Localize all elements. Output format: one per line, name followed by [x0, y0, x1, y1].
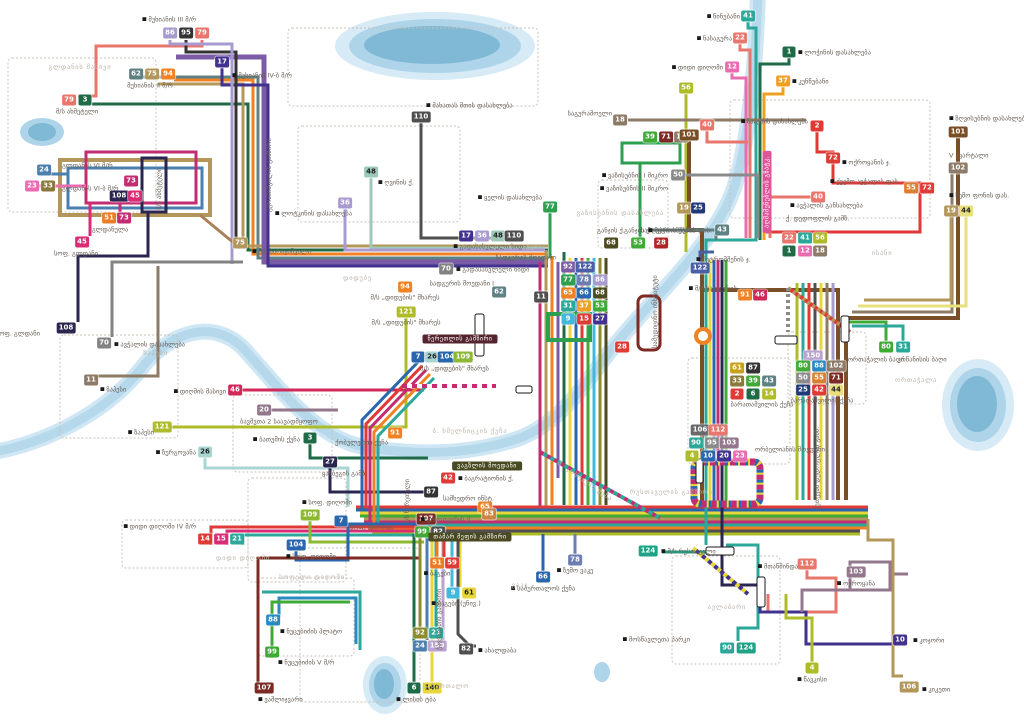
stop-label: ბავშვთა 2 საავადმყოფო — [240, 419, 318, 426]
route-badge-88: 88 — [812, 361, 826, 372]
stop-label: ■ ბაგრატიონის ქ. — [458, 476, 514, 483]
route-badge-3: 3 — [79, 95, 92, 106]
stop-label: ■ მ/ს რუსთაველი — [661, 549, 716, 556]
stop-label: ■ ნუცუბიძის V მ/რ — [278, 660, 334, 667]
route-badge-66: 66 — [536, 572, 550, 583]
terminal-square-icon: ■ — [830, 179, 836, 185]
route-badge-25: 25 — [796, 385, 810, 396]
stop-label: ■ მ/ს სარაჯიშვილი — [252, 249, 311, 256]
terminal-square-icon: ■ — [453, 244, 459, 250]
terminal-square-icon: ■ — [278, 660, 284, 666]
route-badge-62: 62 — [492, 287, 506, 298]
route-badge-102: 102 — [827, 361, 846, 372]
route-badge-80: 80 — [796, 361, 810, 372]
route-badge-17: 17 — [215, 57, 229, 68]
stop-label: ■ ლოჭინის დასახლება — [798, 50, 871, 57]
route-badge-40: 40 — [700, 120, 714, 131]
stop-label: მ/ს „დიდუბის" მხარეს — [371, 295, 440, 302]
route-badge-77: 77 — [561, 275, 575, 286]
route-badge-53: 53 — [593, 301, 607, 312]
terminal-square-icon: ■ — [842, 160, 848, 166]
stop-label: ■ ნასაგურა — [697, 36, 732, 43]
terminal-square-icon: ■ — [602, 173, 608, 179]
district-label: ზაჰესი — [143, 349, 168, 357]
stop-label: ■ მუხიანის IV-ბ მ/რ — [232, 73, 292, 80]
route-badge-14: 14 — [198, 534, 212, 545]
terminal-square-icon: ■ — [623, 637, 629, 643]
route-badge-112: 112 — [798, 559, 817, 570]
route-badge-71: 71 — [659, 132, 673, 143]
district-label: კუკია — [522, 243, 543, 251]
route-badge-108: 108 — [57, 323, 76, 334]
stop-label: მ/ს წერეთელი — [404, 479, 411, 524]
route-badge-9: 9 — [562, 314, 575, 325]
route-badge-50: 50 — [796, 373, 810, 384]
stop-label: ■ მუხიანის III მ/რ — [142, 17, 196, 24]
route-badge-22: 22 — [782, 233, 796, 244]
district-label: გლდანის მასივი — [49, 63, 112, 71]
route-badge-70: 70 — [97, 338, 111, 349]
route-badge-28: 28 — [615, 342, 629, 353]
terminal-square-icon: ■ — [302, 500, 308, 506]
route-badge-4: 4 — [686, 451, 699, 462]
stop-label: სამედიცინო ინსტიტუტი — [652, 275, 659, 348]
terminal-square-icon: ■ — [142, 17, 148, 23]
district-label: დიდი დიღომი — [216, 554, 270, 562]
route-badge-1: 1 — [783, 246, 796, 257]
route-badge-21: 21 — [230, 534, 244, 545]
terminal-square-icon: ■ — [696, 257, 702, 263]
stop-label: ■ ყელის დასახლება — [478, 195, 542, 202]
route-badge-15: 15 — [577, 314, 591, 325]
route-badge-91: 91 — [738, 290, 752, 301]
route-badge-91: 91 — [388, 428, 402, 439]
map-annotations: 8695791762759479324233373108455173457510… — [0, 0, 1024, 724]
route-badge-61: 61 — [462, 588, 476, 599]
terminal-square-icon: ■ — [100, 387, 106, 393]
stop-label: ■ ზღვისუბნის დასახლება — [949, 116, 1024, 123]
route-badge-15: 15 — [214, 534, 228, 545]
route-badge-87: 87 — [746, 363, 760, 374]
district-label: მ. კოსტავას ქუჩა — [556, 459, 614, 503]
stop-label: ■ ბათუმის ქუჩა — [253, 437, 300, 444]
route-badge-110: 110 — [412, 112, 431, 123]
stop-label: სოფ. გლდანი — [54, 251, 98, 258]
route-badge-68: 68 — [604, 238, 618, 249]
stop-label: ყაზბეგის გამზ. — [322, 471, 367, 478]
route-badge-95: 95 — [179, 28, 193, 39]
route-badge-7: 7 — [335, 516, 348, 527]
route-badge-110: 110 — [505, 231, 524, 242]
stop-label: ქობულეთის ქუჩა — [335, 440, 388, 447]
route-badge-121: 121 — [397, 307, 416, 318]
stop-label: ■ მოსწავლეთა პარკი — [623, 637, 690, 644]
route-badge-77: 77 — [543, 202, 557, 213]
route-badge-51: 51 — [430, 558, 444, 569]
route-badge-72: 72 — [920, 183, 934, 194]
stop-label: გლდანულა — [92, 227, 128, 234]
route-badge-19: 19 — [677, 203, 691, 214]
route-badge-124: 124 — [639, 546, 658, 557]
stop-label: ■ ლოტკინის დასახლება — [275, 211, 352, 218]
stop-label: ბარათაშვილის ქუჩა — [731, 402, 794, 409]
terminal-square-icon: ■ — [707, 14, 713, 20]
stop-label: ■ ვაზისუბნის II მიკრო — [600, 186, 668, 193]
terminal-square-icon: ■ — [949, 193, 955, 199]
terminal-square-icon: ■ — [697, 36, 703, 42]
route-badge-104: 104 — [287, 540, 306, 551]
route-badge-103: 103 — [720, 438, 739, 449]
terminal-square-icon: ■ — [922, 687, 928, 693]
terminal-square-icon: ■ — [252, 249, 258, 255]
route-badge-44: 44 — [959, 206, 973, 217]
route-badge-4: 4 — [806, 663, 819, 674]
terminal-square-icon: ■ — [913, 638, 919, 644]
transit-map: 8695791762759479324233373108455173457510… — [0, 0, 1024, 724]
route-badge-46: 46 — [228, 385, 242, 396]
route-badge-95: 95 — [705, 438, 719, 449]
stop-label: ■ კოჯორი — [913, 638, 944, 645]
terminal-square-icon: ■ — [426, 103, 432, 109]
terminal-square-icon: ■ — [232, 73, 238, 79]
terminal-square-icon: ■ — [420, 517, 426, 523]
route-badge-44: 44 — [829, 385, 843, 396]
route-badge-107: 107 — [255, 683, 274, 694]
district-label: დიდუბე — [343, 274, 372, 282]
route-badge-122: 122 — [576, 262, 595, 273]
route-badge-101: 101 — [949, 127, 968, 138]
stop-label: ■ გადასასვლელი ხიდი — [453, 244, 526, 251]
stop-label: სადგურის მოედანი I — [430, 281, 494, 288]
terminal-square-icon: ■ — [424, 571, 430, 577]
route-badge-37: 37 — [776, 76, 790, 87]
district-label: სოფელი დიღომი — [279, 573, 345, 581]
route-badge-20: 20 — [257, 405, 271, 416]
stop-label: ■ გადასასვლელი ხიდი — [456, 267, 529, 274]
stop-label: ■ დიდი დიღომი — [672, 65, 723, 72]
terminal-square-icon: ■ — [478, 648, 484, 654]
route-badge-19: 19 — [944, 206, 958, 217]
route-badge-43: 43 — [715, 225, 729, 236]
route-badge-109: 109 — [301, 510, 320, 521]
route-badge-2: 2 — [811, 121, 824, 132]
street-ribbon-label: თამარ მეფის გამზირი — [428, 533, 511, 542]
route-badge-12: 12 — [798, 246, 812, 257]
route-badge-79: 79 — [195, 28, 209, 39]
route-badge-59: 59 — [445, 558, 459, 569]
stop-label: ■ მახათას მთის დასახლება — [426, 103, 513, 110]
route-badge-80: 80 — [879, 342, 893, 353]
route-badge-10: 10 — [893, 635, 907, 646]
stop-label: ■ ნუცუბიძის პლატო — [280, 629, 342, 636]
stop-label: ■ ახალდაბა — [478, 648, 517, 655]
terminal-square-icon: ■ — [458, 476, 464, 482]
terminal-square-icon: ■ — [689, 286, 695, 292]
terminal-square-icon: ■ — [478, 195, 484, 201]
route-badge-1: 1 — [783, 47, 796, 58]
route-badge-72: 72 — [826, 153, 840, 164]
route-badge-3: 3 — [304, 433, 317, 444]
route-badge-94: 94 — [161, 69, 175, 80]
stop-label: V კვარტალი — [949, 153, 988, 160]
stop-label: გლდანის VI მ/რ — [62, 163, 113, 170]
route-badge-70: 70 — [439, 264, 453, 275]
route-badge-73: 73 — [124, 176, 138, 187]
route-badge-94: 94 — [398, 282, 412, 293]
terminal-square-icon: ■ — [286, 554, 292, 560]
terminal-square-icon: ■ — [557, 568, 563, 574]
stop-label: მ/ს „დიდუბის" მხარეს — [372, 320, 441, 327]
terminal-square-icon: ■ — [280, 629, 286, 635]
route-badge-42: 42 — [812, 385, 826, 396]
route-badge-88: 88 — [266, 615, 280, 626]
stop-label: ■ ზაჰესი — [128, 430, 154, 437]
stop-label: ■ სოფ. დიღომი — [302, 500, 352, 507]
route-badge-87: 87 — [424, 487, 438, 498]
route-badge-36: 36 — [338, 198, 352, 209]
district-label: საბურთალო — [423, 682, 469, 690]
route-badge-109: 109 — [454, 352, 473, 363]
route-badge-62: 62 — [129, 69, 143, 80]
route-badge-22: 22 — [733, 33, 747, 44]
route-badge-6: 6 — [408, 683, 421, 694]
route-badge-26: 26 — [198, 447, 212, 458]
route-badge-31: 31 — [896, 342, 910, 353]
route-badge-90: 90 — [720, 643, 734, 654]
route-badge-10: 10 — [701, 451, 715, 462]
terminal-square-icon: ■ — [672, 65, 678, 71]
terminal-square-icon: ■ — [600, 186, 606, 192]
terminal-square-icon: ■ — [792, 79, 798, 85]
terminal-square-icon: ■ — [758, 564, 764, 570]
route-badge-37: 37 — [577, 301, 591, 312]
route-badge-6: 6 — [747, 389, 760, 400]
route-badge-90: 90 — [689, 438, 703, 449]
stop-label: ■ ზურგოვანა — [156, 450, 196, 457]
street-ribbon-label: ვაგზლის მოედანი — [452, 462, 522, 471]
route-badge-48: 48 — [364, 167, 378, 178]
route-badge-75: 75 — [145, 69, 159, 80]
route-badge-102: 102 — [949, 163, 968, 174]
district-label: ორთაჭალა — [895, 376, 937, 384]
stop-label: ■ მთაწმინდა — [758, 564, 798, 571]
stop-label: ■ გოლოვინის ქ. — [420, 517, 472, 524]
route-badge-82: 82 — [459, 644, 473, 655]
route-badge-121: 121 — [153, 422, 172, 433]
terminal-square-icon: ■ — [837, 581, 843, 587]
route-badge-106: 106 — [900, 682, 919, 693]
stop-label: ■ წავკისი — [797, 677, 827, 684]
stop-label: სამხედრო ინსტ. — [443, 496, 494, 503]
route-badge-36: 36 — [475, 231, 489, 242]
stop-label: ■ ზემო ვაკე — [557, 568, 594, 575]
route-badge-31: 31 — [561, 301, 575, 312]
route-badge-75: 75 — [233, 238, 247, 249]
route-badge-45: 45 — [75, 237, 89, 248]
district-label: ვაზისუბნის დასახლება — [577, 209, 664, 217]
terminal-square-icon: ■ — [790, 203, 796, 209]
route-badge-86: 86 — [593, 275, 607, 286]
route-badge-79: 79 — [62, 95, 76, 106]
route-badge-14: 14 — [762, 389, 776, 400]
stop-label: ორთაჭალის ბაღი — [848, 357, 904, 364]
stop-label: ■ ღვინის ქ. — [378, 180, 414, 187]
terminal-square-icon: ■ — [949, 116, 955, 122]
stop-label: კრწანისის ბაღი — [897, 357, 946, 364]
street-ribbon-label: წერეთლის გამზირი — [423, 335, 498, 344]
route-badge-42: 42 — [441, 473, 455, 484]
route-badge-33: 33 — [730, 376, 744, 387]
stop-label: მუხიანის II მ/რ — [127, 83, 173, 90]
terminal-square-icon: ■ — [253, 437, 259, 443]
route-badge-55: 55 — [812, 373, 826, 384]
route-badge-7: 7 — [412, 352, 425, 363]
route-badge-50: 50 — [671, 170, 685, 181]
stop-label: ■ ოქროყანა — [837, 581, 875, 588]
route-badge-46: 46 — [753, 290, 767, 301]
stop-label: ■ ავჭალის განსახლება — [790, 203, 863, 210]
stop-label: ქ. დედოფლის გამზ. — [786, 216, 849, 223]
route-badge-103: 103 — [847, 567, 866, 578]
route-badge-27: 27 — [323, 457, 337, 468]
route-badge-24: 24 — [37, 165, 51, 176]
route-badge-106: 106 — [691, 425, 710, 436]
route-badge-18: 18 — [613, 115, 627, 126]
route-badge-86: 86 — [163, 28, 177, 39]
stop-label: ■ დიდი დიღომი IV მ/რ — [123, 524, 196, 531]
route-badge-65: 65 — [561, 288, 575, 299]
route-badge-78: 78 — [577, 275, 591, 286]
route-badge-20: 20 — [717, 451, 731, 462]
route-badge-66: 66 — [577, 288, 591, 299]
stop-label: ჭავჭავაძის გამზირი — [436, 589, 443, 650]
stop-label: ბარათაშვილის ქუჩა — [791, 398, 854, 405]
stop-label: ■ სოფ. დიღომი — [286, 554, 336, 561]
stop-label: ■ მეტრომშენის დას. — [648, 228, 712, 235]
terminal-square-icon: ■ — [798, 50, 804, 56]
route-badge-78: 78 — [568, 555, 582, 566]
stop-label: სადგურის მოედანი — [496, 255, 556, 262]
route-badge-71: 71 — [829, 373, 843, 384]
route-badge-124: 124 — [737, 643, 756, 654]
terminal-square-icon: ■ — [128, 430, 134, 436]
route-badge-23: 23 — [733, 451, 747, 462]
route-badge-56: 56 — [813, 233, 827, 244]
terminal-square-icon: ■ — [456, 267, 462, 273]
stop-label: ■ ქვემო ავჭალის დას. — [830, 179, 900, 186]
route-badge-33: 33 — [41, 181, 55, 192]
route-badge-12: 12 — [725, 62, 739, 73]
terminal-square-icon: ■ — [741, 119, 747, 125]
route-badge-41: 41 — [741, 11, 755, 22]
street-ribbon-label: აღმაშენებლის გზატკ. — [763, 151, 772, 233]
route-badge-99: 99 — [265, 647, 279, 658]
stop-label: ■ კუნწუბანი — [792, 79, 829, 86]
district-label: ვაკე — [512, 581, 528, 589]
district-label: რუსთაველის გამზირი — [630, 488, 713, 496]
stop-label: ■ დიღმის მასივი — [174, 389, 227, 396]
route-badge-23: 23 — [25, 181, 39, 192]
route-badge-101: 101 — [680, 130, 699, 141]
stop-label: გურამიშვილის გამზირი — [266, 138, 273, 212]
stop-label: მ/ს „დიდუბის" მხარეს — [420, 366, 489, 373]
stop-label: ■ წინუბანი — [707, 14, 740, 21]
route-badge-55: 55 — [904, 183, 918, 194]
district-label: ბ. ხმელნიცკის ქუჩა — [433, 427, 508, 435]
route-badge-18: 18 — [813, 246, 827, 257]
route-badge-17: 17 — [459, 231, 473, 242]
route-badge-73: 73 — [117, 213, 131, 224]
route-badge-45: 45 — [128, 191, 142, 202]
stop-label: გლდანის VI-ბ მ/რ — [62, 186, 118, 193]
terminal-square-icon: ■ — [661, 549, 667, 555]
route-badge-48: 48 — [491, 231, 505, 242]
terminal-square-icon: ■ — [378, 180, 384, 186]
stop-label: სოფ. დიღომი — [350, 525, 394, 532]
route-badge-92: 92 — [561, 262, 575, 273]
route-badge-9: 9 — [447, 588, 460, 599]
route-badge-2: 2 — [731, 389, 744, 400]
stop-label: ■ ლისის ტბა — [396, 697, 436, 704]
route-badge-43: 43 — [762, 376, 776, 387]
stop-label: ■ ავჭალის დასახლება — [114, 342, 185, 349]
terminal-square-icon: ■ — [797, 677, 803, 683]
route-badge-27: 27 — [593, 314, 607, 325]
route-badge-112: 112 — [709, 425, 728, 436]
stop-label: სოფ. გლდანი — [0, 331, 40, 338]
terminal-square-icon: ■ — [156, 450, 162, 456]
route-badge-83: 83 — [482, 509, 496, 520]
stop-label: საგურამოელი — [568, 111, 612, 118]
terminal-square-icon: ■ — [396, 697, 402, 703]
stop-label: მ/ს ახმეტელი — [156, 168, 163, 210]
route-badge-56: 56 — [679, 83, 693, 94]
route-badge-122: 122 — [691, 263, 710, 274]
terminal-square-icon: ■ — [275, 211, 281, 217]
terminal-square-icon: ■ — [114, 342, 120, 348]
terminal-square-icon: ■ — [174, 389, 180, 395]
stop-label: ■ ზაჰესი — [100, 387, 126, 394]
route-badge-39: 39 — [746, 376, 760, 387]
stop-label: ■ მეტრომშენის ჯ. — [696, 257, 751, 264]
terminal-square-icon: ■ — [648, 228, 654, 234]
stop-label: ქეთევან დედოფლის გამზ. — [814, 427, 821, 510]
route-badge-53: 53 — [631, 238, 645, 249]
route-badge-61: 61 — [730, 363, 744, 374]
route-badge-24: 24 — [413, 641, 427, 652]
route-badge-28: 28 — [654, 238, 668, 249]
route-badge-41: 41 — [798, 233, 812, 244]
route-badge-99: 99 — [415, 527, 429, 538]
route-badge-39: 39 — [643, 132, 657, 143]
stop-label: ■ მ/ს სადგურის — [689, 286, 738, 293]
district-label: ისანი — [872, 249, 893, 257]
route-badge-25: 25 — [691, 203, 705, 214]
stop-label: ■ ზაჰესის დასახლება — [741, 119, 808, 126]
route-badge-11: 11 — [84, 375, 98, 386]
route-badge-51: 51 — [102, 213, 116, 224]
route-badge-68: 68 — [593, 288, 607, 299]
stop-label: ■ ოქროყანის ჯ. — [842, 160, 891, 167]
stop-label: მ/ს ახმეტელი — [56, 109, 98, 116]
terminal-square-icon: ■ — [123, 524, 129, 530]
stop-label: ■ ზემო ფონის დას. — [949, 193, 1009, 200]
route-badge-11: 11 — [534, 292, 548, 303]
stop-label: ■ ვაზისუბნის I მიკრო — [602, 173, 668, 180]
stop-label: ■ ბაგები — [424, 571, 451, 578]
stop-label: განჯის ქ. — [597, 228, 625, 235]
stop-label: ■ კიკეთი — [922, 687, 950, 694]
